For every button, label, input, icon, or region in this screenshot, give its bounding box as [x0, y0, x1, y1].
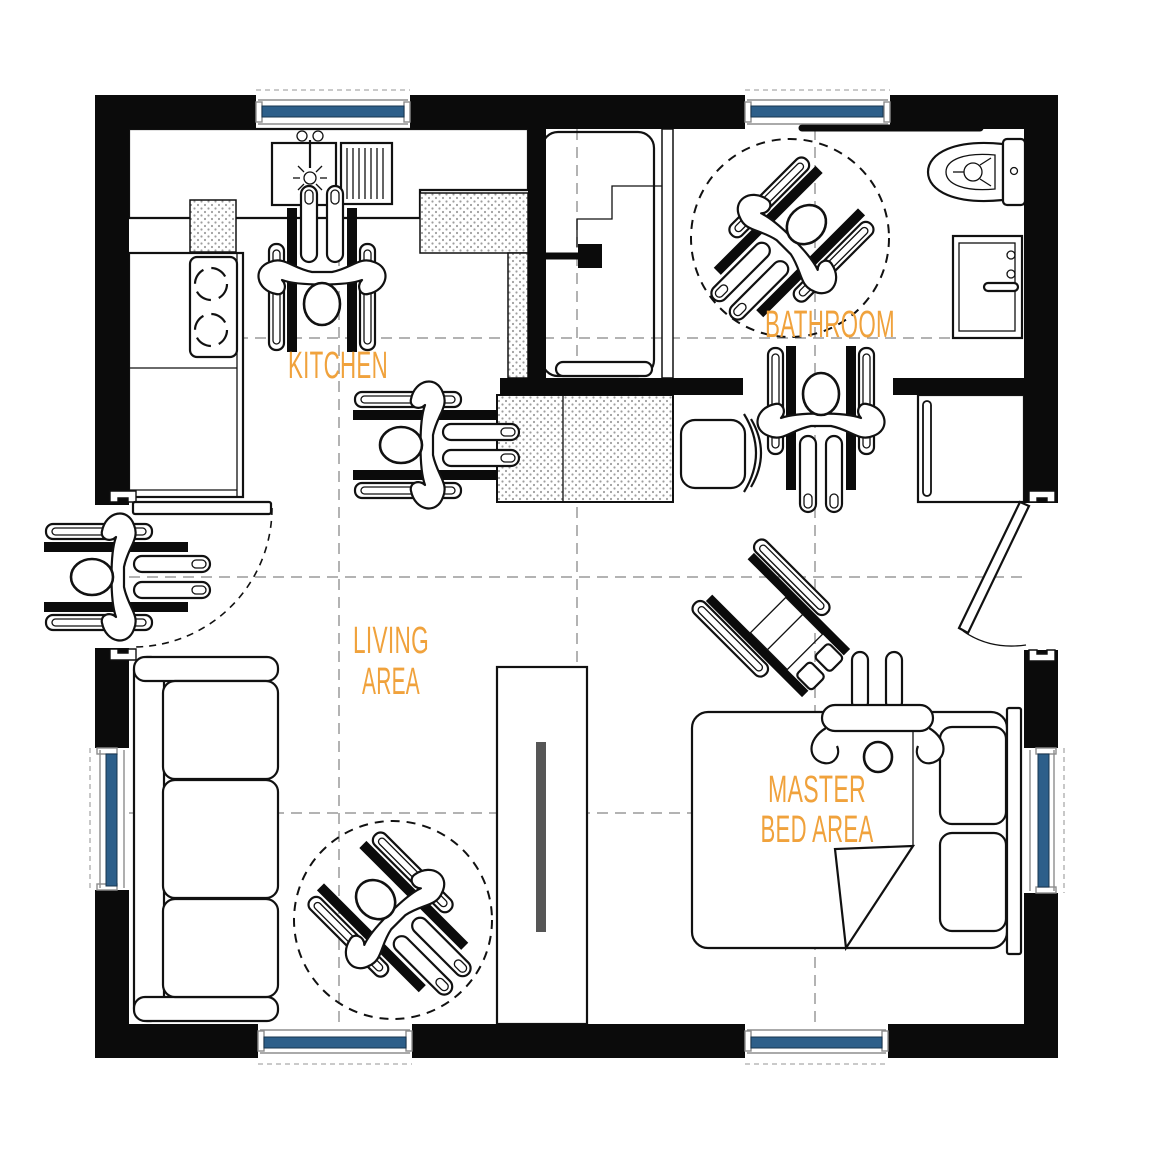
drying-rack — [341, 143, 392, 204]
headboard — [1007, 708, 1021, 954]
shower-bench — [556, 362, 652, 376]
tv-cabinet — [497, 667, 587, 1024]
vanity-sink — [953, 236, 1022, 338]
floor-plan-drawing: KITCHEN BATHROOM LIVING AREA MASTER BED … — [0, 0, 1155, 1155]
interior-wall-kitchen — [528, 129, 546, 395]
glass-partition — [662, 129, 673, 378]
window-top-bathroom — [745, 90, 890, 124]
living-area-label-line2: AREA — [362, 661, 420, 703]
stove — [190, 257, 237, 357]
side-door-swing — [963, 631, 1026, 646]
shower-room — [542, 129, 673, 378]
side-door-leaf — [959, 502, 1029, 633]
sofa — [134, 657, 278, 1021]
wheelchair-user-dining-icon — [353, 382, 519, 509]
dining-area — [497, 395, 761, 502]
pillow — [940, 833, 1006, 931]
wheelchair-empty-icon — [690, 537, 864, 711]
tv-screen — [536, 742, 546, 932]
shower-shelf — [577, 186, 672, 247]
window-bottom-bed — [745, 1030, 888, 1064]
wardrobe-door-handle — [923, 401, 931, 496]
dining-table — [497, 395, 673, 502]
interior-wall-bath-right — [893, 378, 1024, 395]
window-right-bed — [1030, 748, 1064, 893]
bathroom-label: BATHROOM — [765, 304, 895, 346]
dining-chair — [681, 414, 761, 492]
shower-handle — [578, 244, 602, 268]
entry-door — [110, 491, 272, 660]
window-top-kitchen — [256, 90, 410, 124]
toilet — [928, 139, 1025, 205]
counter-hatch-strip — [508, 253, 528, 378]
window-left-living — [90, 748, 124, 890]
wheelchair-user-living-icon — [297, 821, 504, 1028]
living-area-label-line1: LIVING — [353, 620, 429, 662]
entry-door-leaf — [133, 502, 271, 514]
counter-hatch-left — [190, 200, 236, 252]
window-bottom-living — [258, 1030, 412, 1064]
pillow — [940, 727, 1006, 824]
kitchen-label: KITCHEN — [288, 345, 388, 387]
wardrobe — [918, 395, 1024, 502]
interior-wall-bath-left — [500, 378, 743, 395]
counter-hatch-right — [420, 193, 528, 253]
wheelchair-user-doorway-icon — [758, 346, 885, 512]
side-door — [959, 491, 1055, 661]
floor-plan-page: KITCHEN BATHROOM LIVING AREA MASTER BED … — [0, 0, 1155, 1155]
master-bed-label-line2: BED AREA — [761, 809, 874, 851]
master-bed-label-line1: MASTER — [768, 769, 866, 811]
